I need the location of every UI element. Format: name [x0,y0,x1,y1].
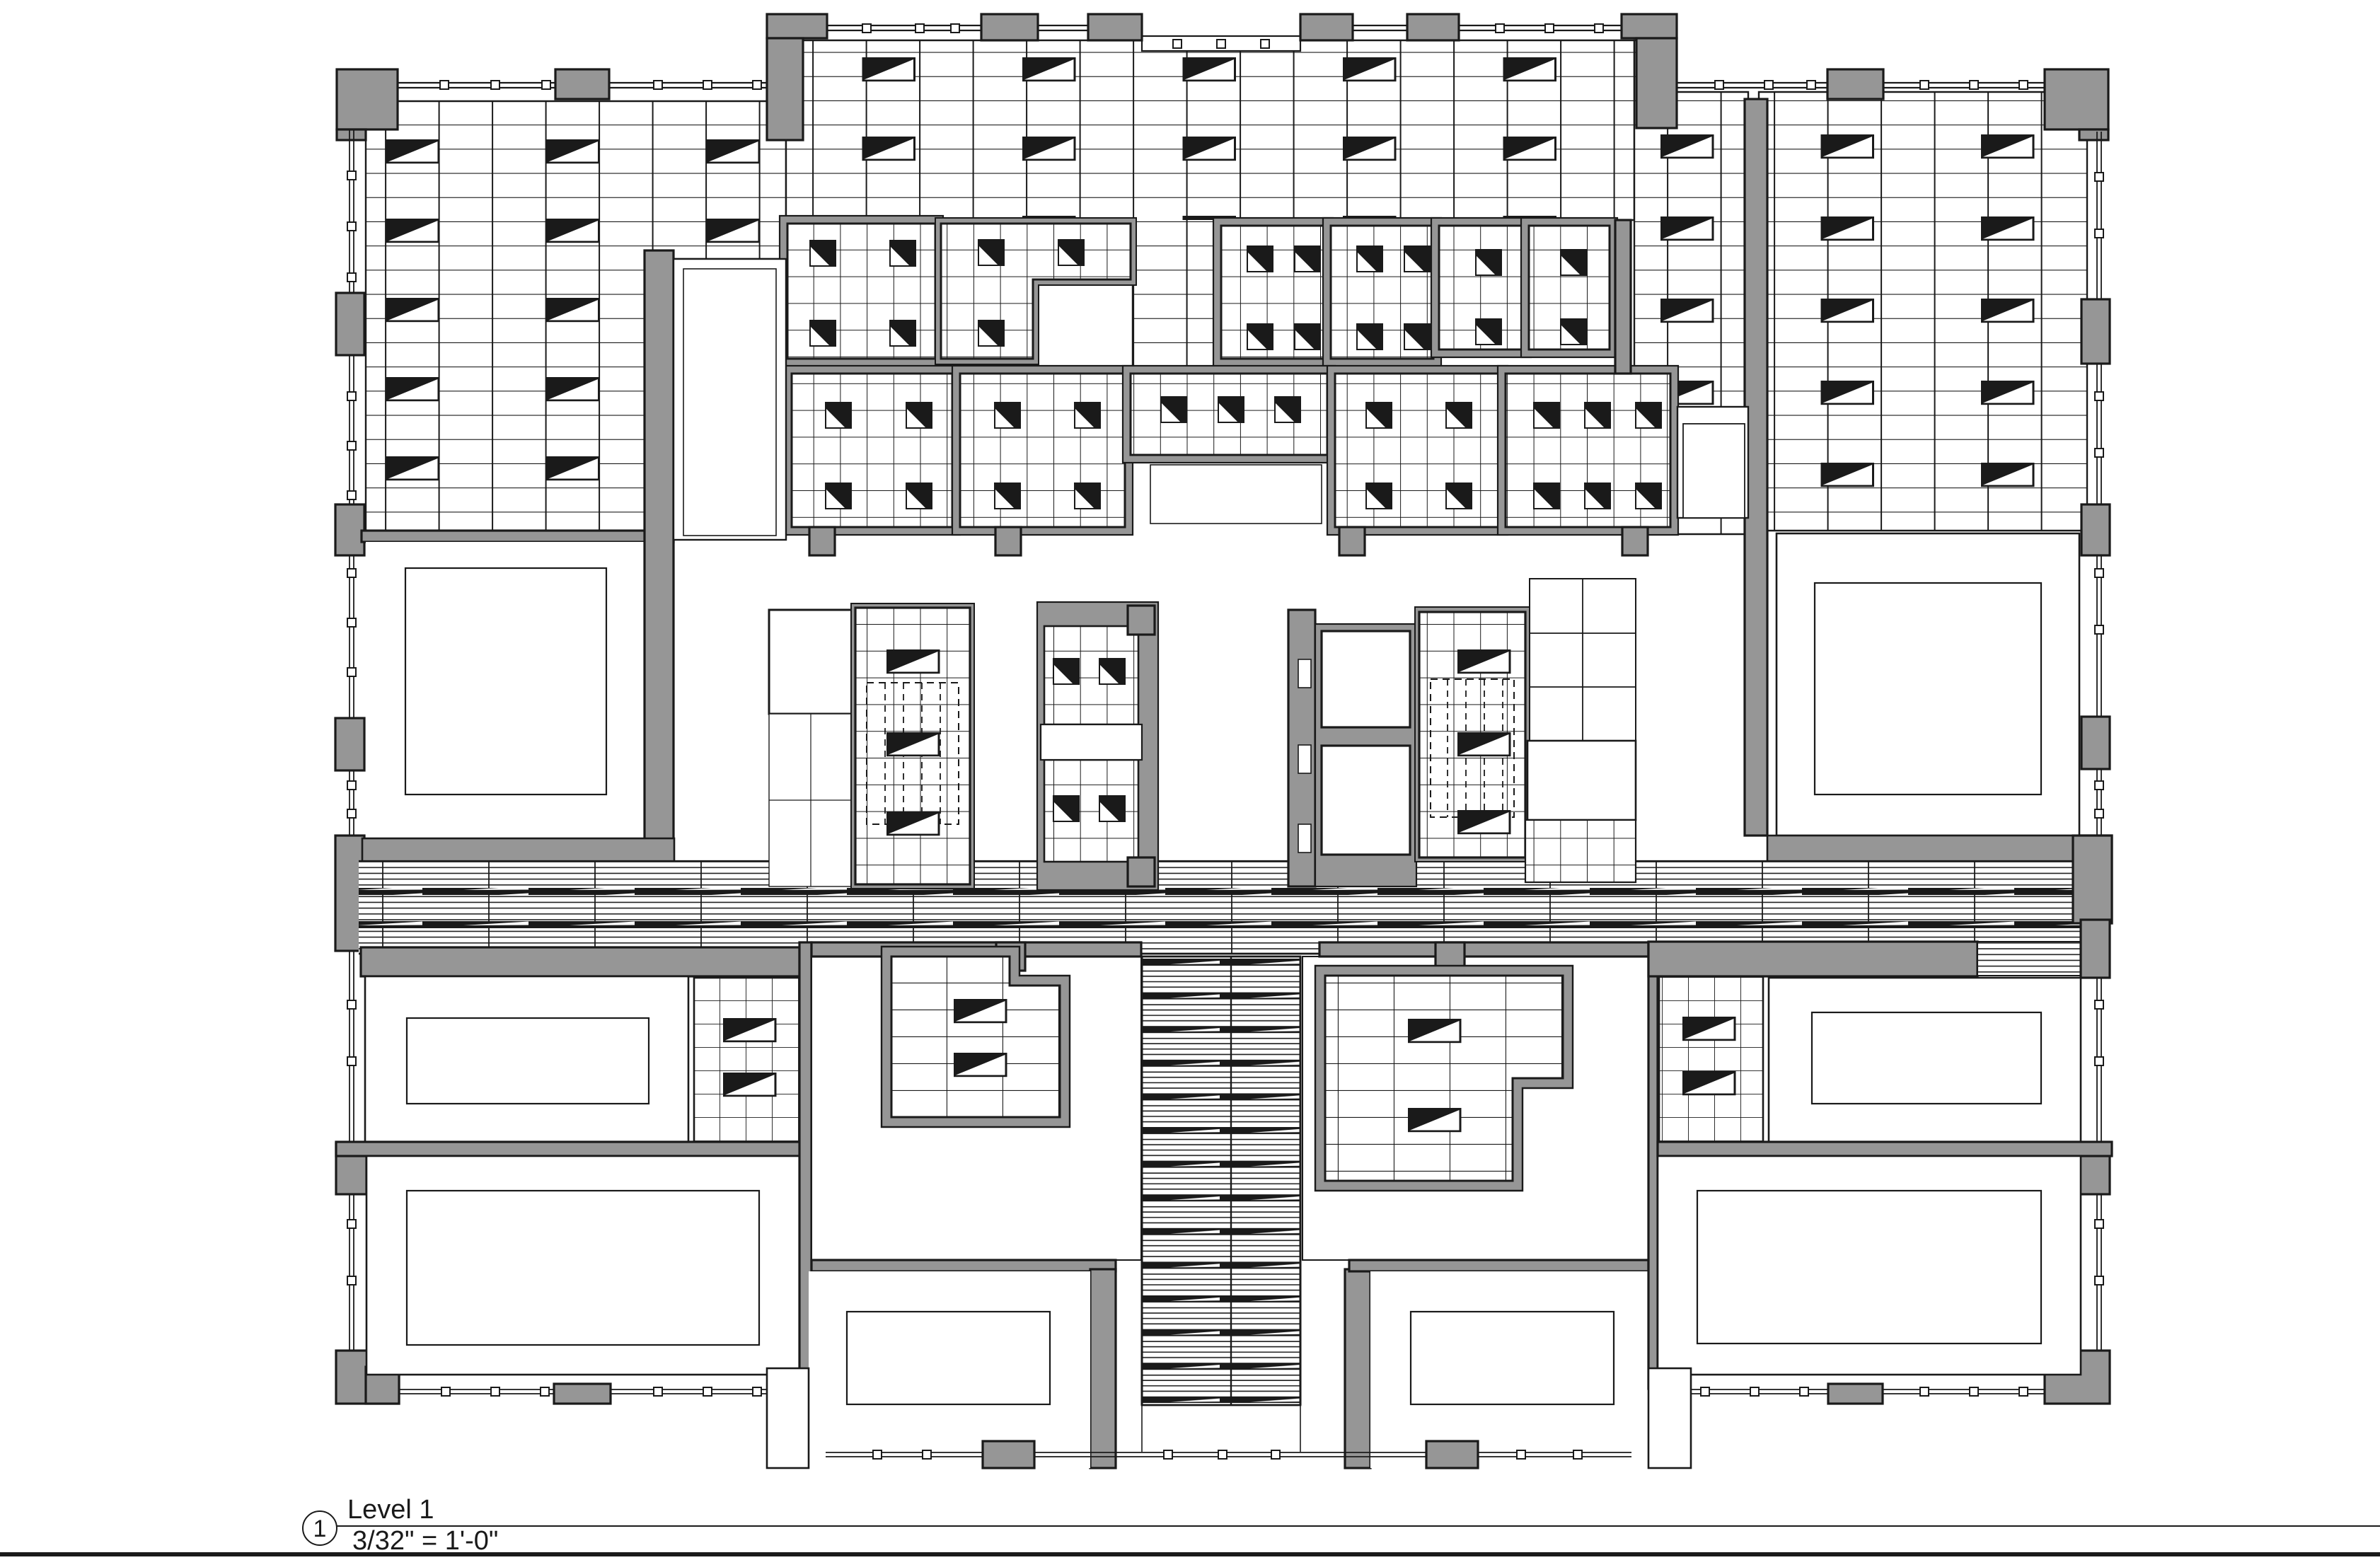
svg-text:Level 1: Level 1 [347,1495,434,1525]
svg-text:3/32" = 1'-0": 3/32" = 1'-0" [352,1526,498,1556]
svg-text:1: 1 [313,1515,327,1542]
